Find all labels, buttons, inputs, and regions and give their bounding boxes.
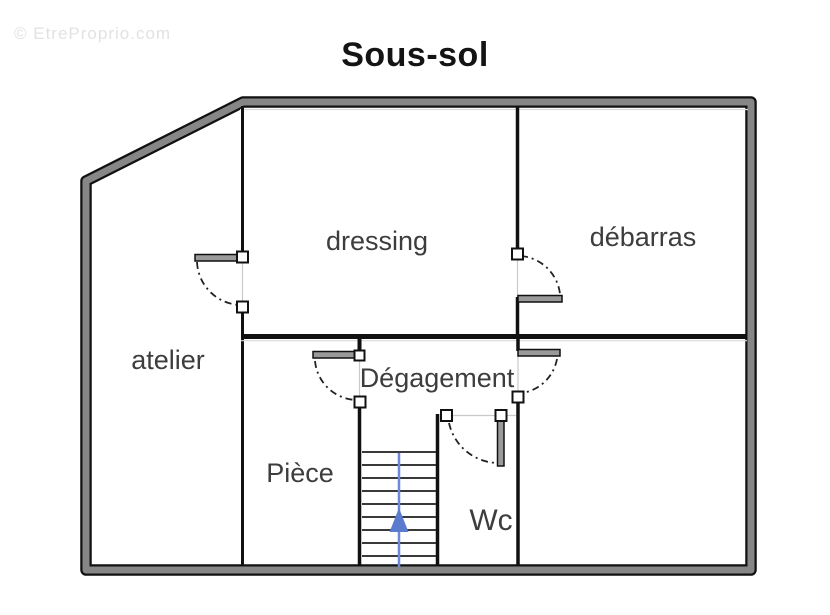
door-arc-atelier xyxy=(197,262,240,305)
jamb-piece-bottom xyxy=(355,397,366,408)
jamb-wc-right xyxy=(496,410,507,421)
jamb-debarras-top xyxy=(512,249,523,260)
jamb-atelier-bottom xyxy=(237,302,248,313)
door-arc-wc xyxy=(449,423,499,463)
room-label-wc: Wc xyxy=(469,504,512,537)
door-leaf-right-room xyxy=(518,350,560,357)
staircase xyxy=(362,452,436,567)
jamb-atelier-top xyxy=(237,252,248,263)
door-arc-right-room xyxy=(522,359,557,393)
jamb-right-room-bottom xyxy=(513,392,524,403)
room-label-degagement: Dégagement xyxy=(360,363,515,393)
interior-walls xyxy=(241,106,747,566)
door-arcs xyxy=(197,256,560,463)
room-label-atelier: atelier xyxy=(131,345,205,375)
jamb-piece-top xyxy=(355,351,365,361)
floorplan-page: © EtreProprio.com Sous-sol xyxy=(0,0,830,615)
room-label-piece: Pièce xyxy=(266,458,334,488)
door-leaf-atelier xyxy=(195,255,242,262)
door-leaf-debarras xyxy=(518,296,562,303)
stair-up-arrow-icon xyxy=(390,508,409,532)
door-leaves xyxy=(195,255,562,467)
room-labels: dressing débarras atelier Dégagement Piè… xyxy=(131,222,696,537)
door-arc-piece xyxy=(315,361,356,400)
door-leaf-wc xyxy=(498,416,505,466)
door-leaf-piece xyxy=(313,352,359,359)
floorplan-drawing: dressing débarras atelier Dégagement Piè… xyxy=(0,0,830,615)
door-arc-debarras xyxy=(521,256,560,294)
room-label-dressing: dressing xyxy=(326,226,428,256)
jamb-wc-left xyxy=(441,410,452,421)
room-label-debarras: débarras xyxy=(590,222,697,252)
